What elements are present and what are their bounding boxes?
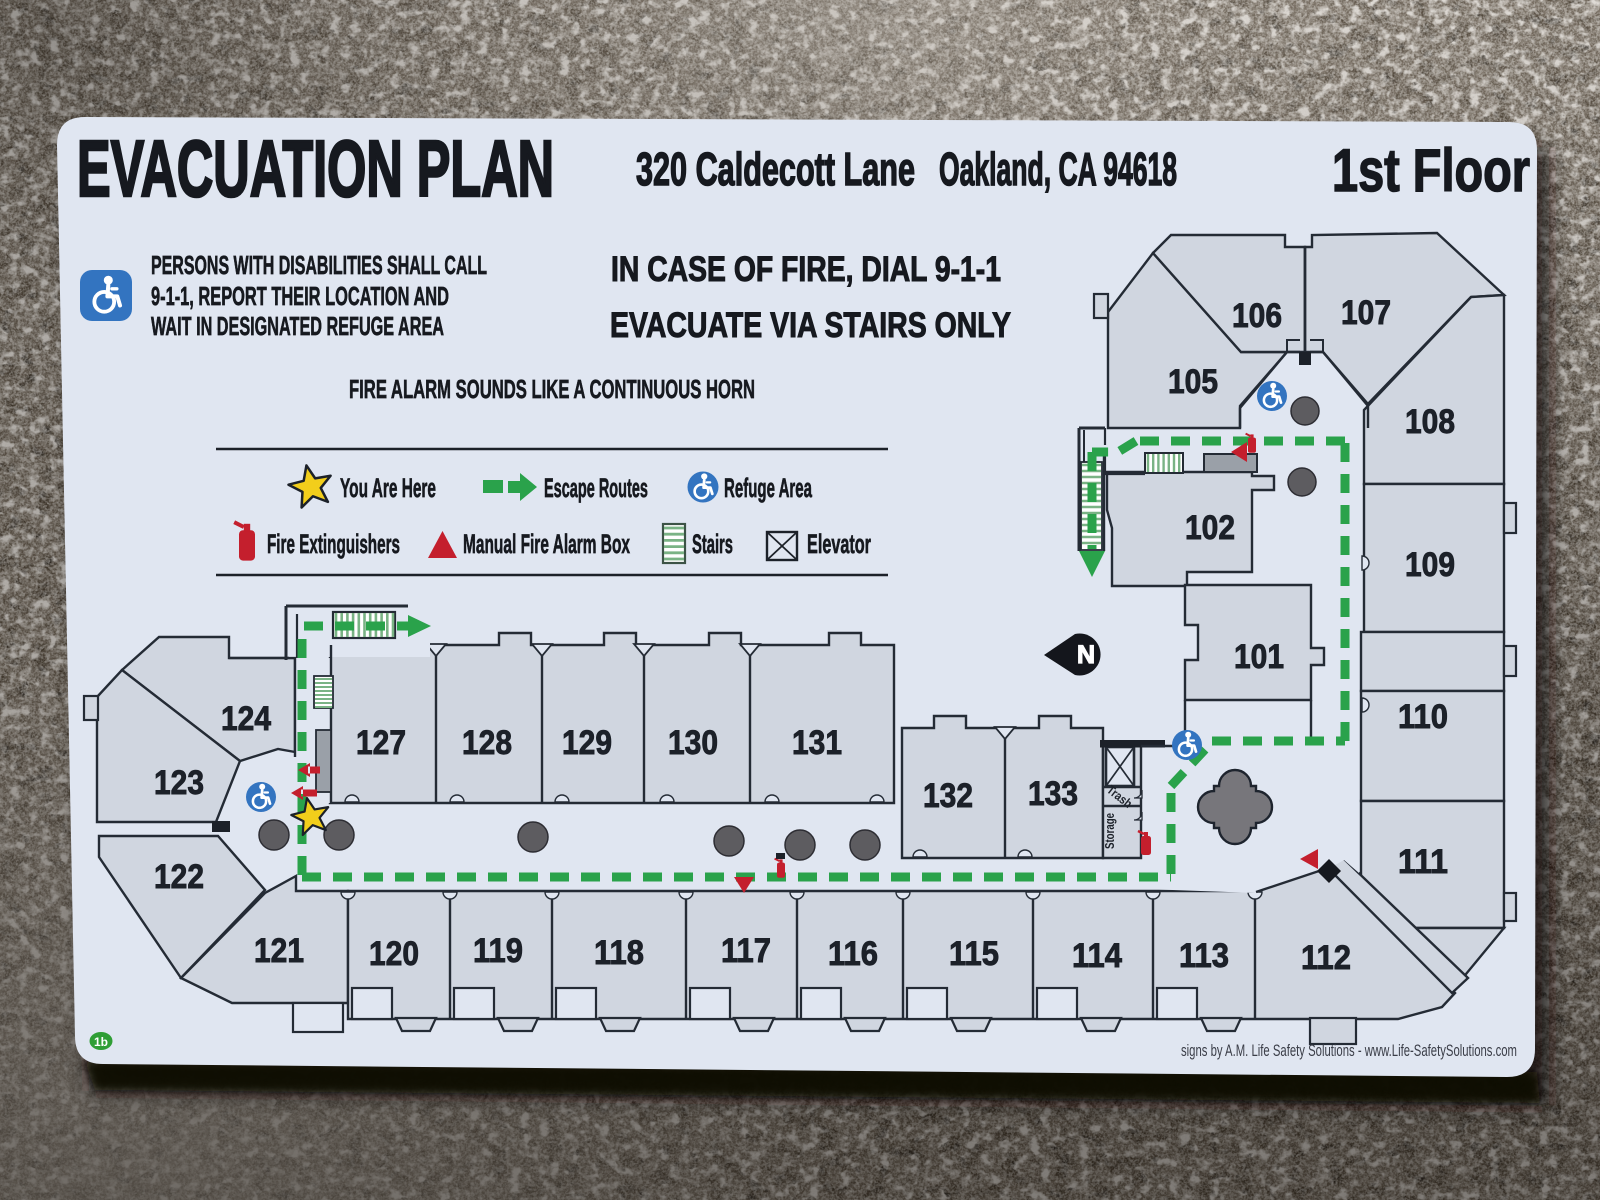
svg-text:110: 110 [1398,698,1448,736]
svg-text:115: 115 [949,935,999,973]
svg-text:101: 101 [1234,638,1284,676]
svg-text:113: 113 [1179,937,1229,975]
svg-text:127: 127 [356,724,406,762]
svg-text:111: 111 [1398,843,1448,881]
svg-text:128: 128 [462,724,512,762]
svg-text:Storage: Storage [1103,813,1117,849]
svg-text:122: 122 [154,858,204,896]
svg-text:124: 124 [221,700,271,738]
svg-text:123: 123 [154,764,204,802]
svg-text:116: 116 [828,935,878,973]
svg-text:108: 108 [1405,403,1455,441]
svg-text:102: 102 [1185,509,1235,547]
svg-text:119: 119 [473,932,523,970]
svg-text:118: 118 [594,934,644,972]
svg-text:121: 121 [254,932,304,970]
svg-text:131: 131 [792,724,842,762]
svg-text:130: 130 [668,724,718,762]
svg-text:132: 132 [923,777,973,815]
svg-text:129: 129 [562,724,612,762]
svg-text:107: 107 [1341,294,1391,332]
svg-text:106: 106 [1232,297,1282,335]
svg-text:114: 114 [1072,937,1122,975]
svg-text:112: 112 [1301,939,1351,977]
svg-text:120: 120 [369,935,419,973]
svg-text:133: 133 [1028,775,1078,813]
svg-text:117: 117 [721,932,771,970]
svg-text:109: 109 [1405,546,1455,584]
svg-text:1b: 1b [94,1035,108,1049]
svg-text:N: N [1077,641,1095,669]
svg-text:105: 105 [1168,363,1218,401]
